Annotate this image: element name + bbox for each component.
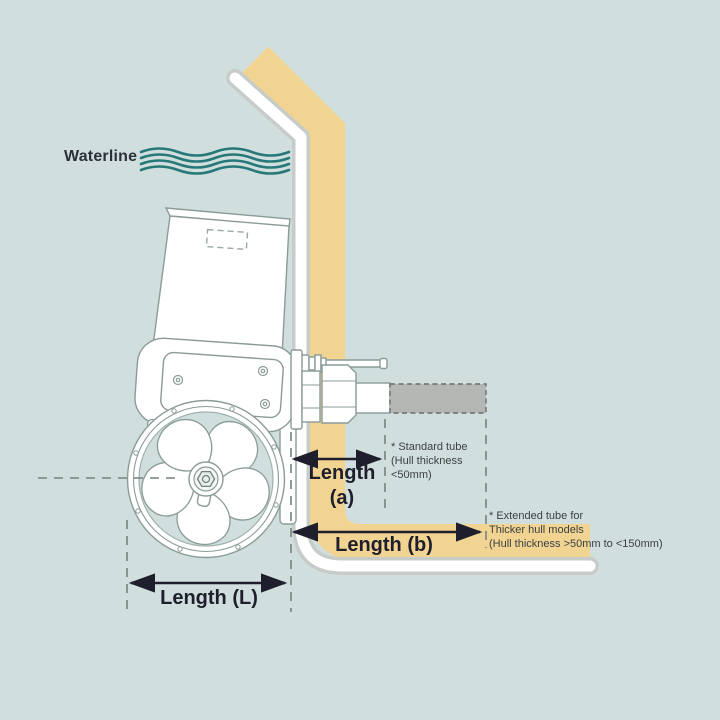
mounting-flange	[291, 350, 302, 429]
thruster-length-diagram: Waterline Length (a) Length (b) Length (…	[0, 0, 720, 720]
standard-tube	[354, 383, 390, 413]
standard-tube-note-line1: * Standard tube	[391, 440, 467, 454]
hex-locknut-small	[302, 371, 320, 422]
motor-panel	[153, 216, 289, 356]
tube-assembly	[291, 350, 486, 429]
length-a-label: Length (a)	[300, 461, 384, 511]
extended-tube-note-line3: (Hull thickness >50mm to <150mm)	[489, 537, 663, 551]
length-l-label: Length (L)	[130, 586, 288, 611]
propeller-assembly	[128, 401, 285, 558]
thruster-unit	[128, 208, 299, 558]
extended-tube-note-line1: * Extended tube for	[489, 509, 663, 523]
hex-locknut-large	[322, 365, 356, 423]
length-b-label: Length (b)	[304, 533, 464, 558]
extended-tube-note-line2: Thicker hull models	[489, 523, 663, 537]
length-a-label-line2: (a)	[300, 486, 384, 511]
waterline-waves-icon	[141, 149, 289, 174]
extended-tube	[390, 384, 486, 413]
standard-tube-note-line2: (Hull thickness	[391, 454, 467, 468]
standard-tube-note-line3: <50mm)	[391, 468, 467, 482]
standard-tube-note: * Standard tube (Hull thickness <50mm)	[391, 440, 467, 482]
hub-nut	[198, 472, 215, 487]
length-a-label-line1: Length	[300, 461, 384, 486]
diagram-canvas	[0, 0, 720, 720]
extended-tube-note: * Extended tube for Thicker hull models …	[489, 509, 663, 551]
waterline-label: Waterline	[64, 148, 144, 166]
